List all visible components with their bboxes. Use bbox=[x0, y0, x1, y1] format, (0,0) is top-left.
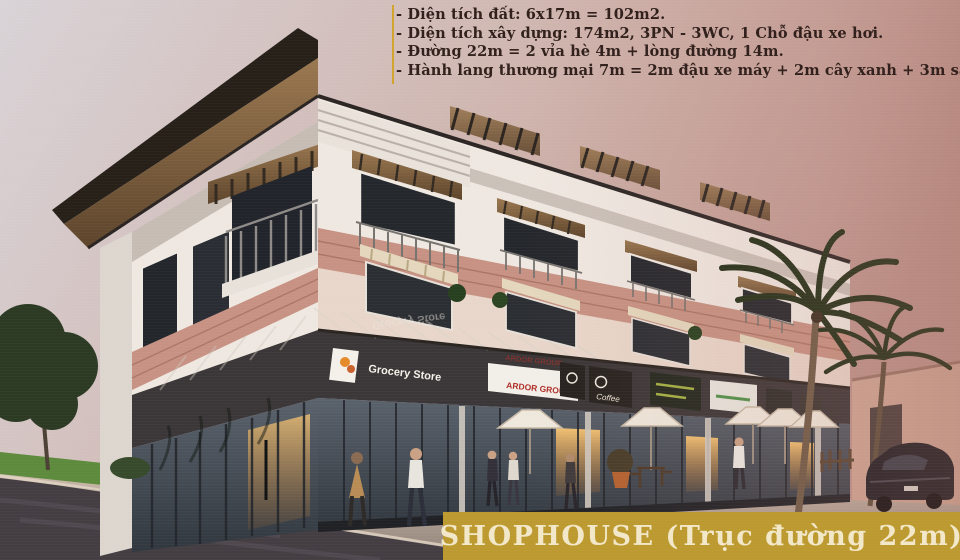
banner-title: SHOPHOUSE (Trục đường 22m) bbox=[440, 521, 960, 552]
shophouse-rendering: Grocery Store Grocery Store ARDOR GROUP … bbox=[0, 0, 960, 560]
spec-line-3: - Đường 22m = 2 vỉa hè 4m + lòng đường 1… bbox=[396, 43, 956, 62]
title-banner: SHOPHOUSE (Trục đường 22m) bbox=[443, 512, 960, 560]
spec-line-4: - Hành lang thương mại 7m = 2m đậu xe má… bbox=[396, 62, 956, 81]
photo-tint bbox=[0, 0, 960, 560]
spec-callout-rule bbox=[392, 5, 394, 84]
architectural-render: Grocery Store Grocery Store ARDOR GROUP … bbox=[0, 0, 960, 560]
spec-callout: - Diện tích đất: 6x17m = 102m2. - Diện t… bbox=[396, 6, 956, 80]
spec-line-1: - Diện tích đất: 6x17m = 102m2. bbox=[396, 6, 956, 25]
spec-line-2: - Diện tích xây dựng: 174m2, 3PN - 3WC, … bbox=[396, 25, 956, 44]
